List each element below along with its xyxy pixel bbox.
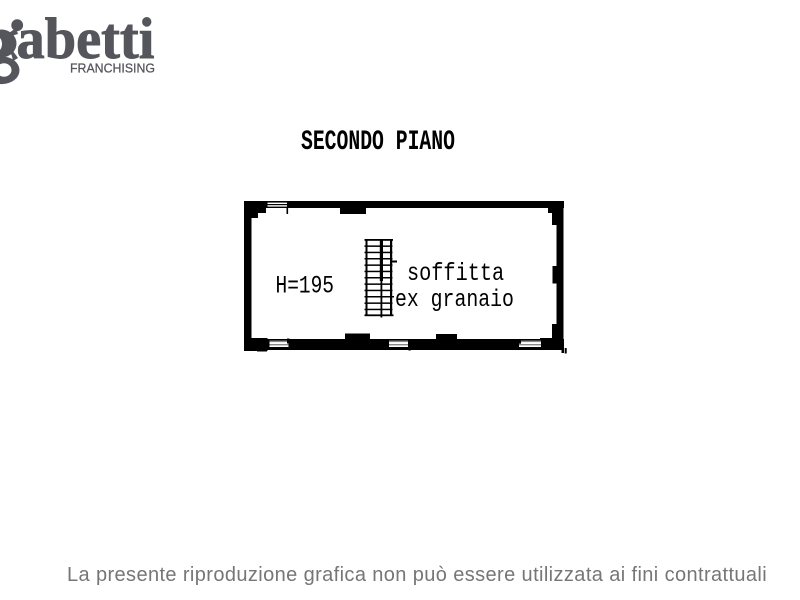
svg-text:ex granaio: ex granaio: [395, 286, 514, 313]
svg-text:SECONDO PIANO: SECONDO PIANO: [301, 127, 455, 158]
svg-text:H=195: H=195: [276, 271, 334, 300]
svg-text:soffitta: soffitta: [407, 259, 504, 288]
